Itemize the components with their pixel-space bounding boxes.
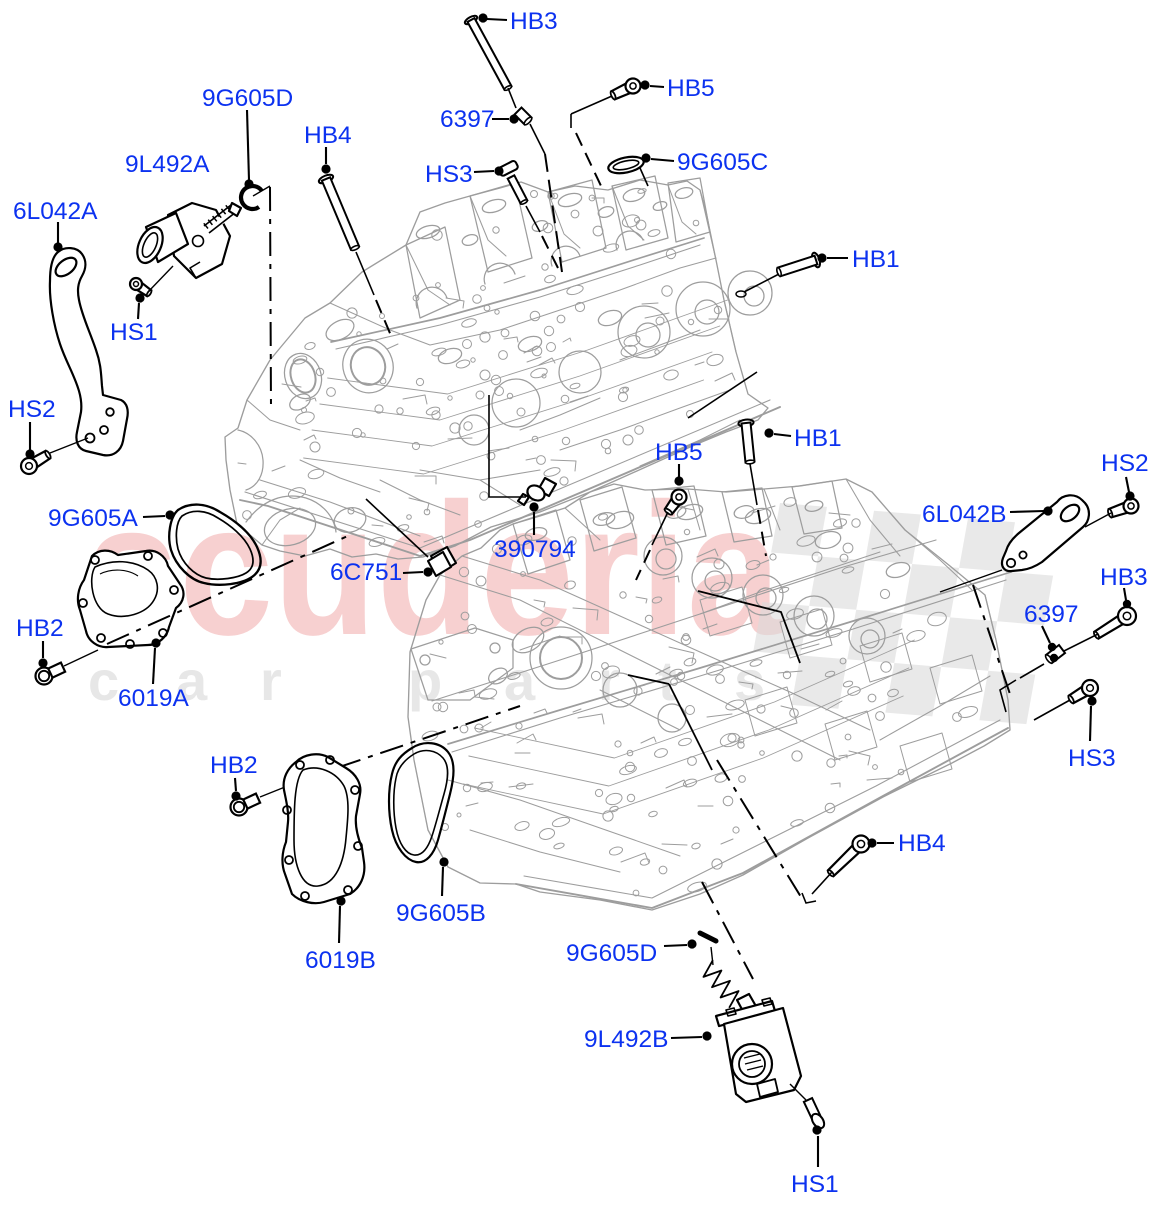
svg-text:6L042A: 6L042A [13,198,98,225]
svg-text:r: r [260,649,282,712]
svg-text:HB1: HB1 [794,425,842,452]
svg-text:HB3: HB3 [510,8,558,35]
svg-text:HB1: HB1 [852,246,900,273]
svg-text:HB5: HB5 [655,439,703,466]
svg-text:HS1: HS1 [110,319,158,346]
svg-text:HS3: HS3 [425,161,473,188]
svg-text:HB4: HB4 [898,830,946,857]
svg-text:HS1: HS1 [791,1171,839,1198]
svg-text:HB2: HB2 [16,615,64,642]
svg-text:6019B: 6019B [305,947,376,974]
svg-text:HB3: HB3 [1100,564,1148,591]
svg-text:6L042B: 6L042B [922,501,1006,528]
svg-text:HS2: HS2 [8,396,56,423]
svg-text:6397: 6397 [1024,601,1079,628]
svg-text:HS2: HS2 [1101,450,1149,477]
svg-text:HS3: HS3 [1068,745,1116,772]
svg-text:6C751: 6C751 [330,559,402,586]
svg-text:HB4: HB4 [304,122,352,149]
svg-text:9G605D: 9G605D [566,940,657,967]
svg-text:HB2: HB2 [210,752,258,779]
svg-text:a: a [504,649,536,712]
svg-text:9L492A: 9L492A [125,151,210,178]
svg-text:9G605C: 9G605C [677,149,768,176]
svg-text:c: c [88,649,119,712]
svg-text:HB5: HB5 [667,75,715,102]
svg-text:9G605B: 9G605B [396,900,486,927]
svg-text:6397: 6397 [440,106,495,133]
svg-text:390794: 390794 [494,536,576,563]
svg-text:s: s [734,649,765,712]
svg-text:9G605A: 9G605A [48,505,139,532]
svg-text:6019A: 6019A [118,685,190,712]
svg-text:9L492B: 9L492B [584,1026,668,1053]
svg-text:9G605D: 9G605D [202,85,293,112]
